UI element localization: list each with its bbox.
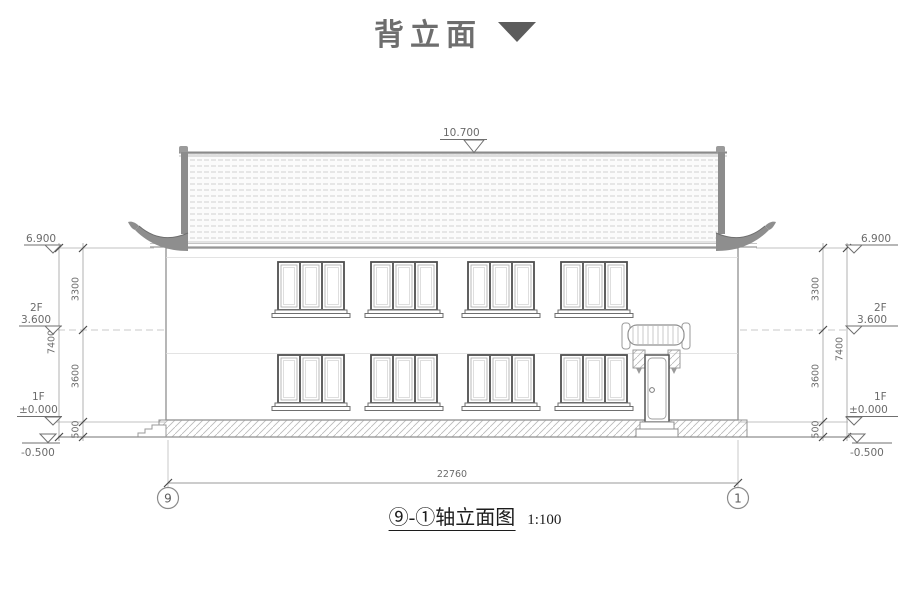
level-f2-left: 3.600 (21, 314, 51, 326)
axis-label-9: 9 (164, 492, 172, 506)
gable-left (181, 152, 188, 234)
building (58, 248, 850, 437)
floor1-label-right: 1F (874, 391, 887, 403)
dim-3300: 3300 (811, 277, 822, 301)
level-f1-left: ±0.000 (19, 404, 58, 416)
dim-3600: 3600 (71, 364, 82, 388)
tile-area (187, 154, 721, 242)
floor1-label-left: 1F (32, 391, 45, 403)
dim-3600: 3600 (811, 364, 822, 388)
door-step-2 (636, 429, 678, 437)
gable-right (718, 152, 725, 234)
dim-7400: 7400 (835, 337, 846, 361)
ridge-ornament-right (716, 146, 725, 153)
level-ridge: 10.700 (443, 127, 480, 139)
level-f1-right: ±0.000 (849, 404, 888, 416)
door-step-1 (640, 422, 674, 429)
elevation-page: 背立面 (0, 0, 910, 616)
caption-text: ⑨-①轴立面图 (389, 507, 516, 531)
left-steps (138, 425, 166, 437)
canopy-bracket-right (668, 350, 680, 368)
dimension-ticks (55, 244, 87, 441)
ridge-ornament-left (179, 146, 188, 153)
caption-scale: 1:100 (527, 512, 561, 528)
dim-22760: 22760 (437, 469, 467, 480)
window (272, 262, 350, 318)
window (365, 355, 443, 411)
dimension-right: 3300 3600 500 7400 (811, 243, 852, 441)
dimension-bottom: 22760 9 1 (158, 440, 749, 509)
level-ground-right: -0.500 (850, 447, 884, 459)
window (462, 355, 540, 411)
level-eave-left: 6.900 (26, 233, 56, 245)
floor2-label-right: 2F (874, 302, 887, 314)
window (555, 262, 633, 318)
level-eave-right: 6.900 (861, 233, 891, 245)
dim-500: 500 (811, 420, 822, 438)
window (555, 355, 633, 411)
axis-label-1: 1 (734, 492, 742, 506)
door-canopy (628, 325, 684, 345)
floor2-label-left: 2F (30, 302, 43, 314)
dim-3300: 3300 (71, 277, 82, 301)
canopy-bracket-left (633, 350, 645, 368)
window (365, 262, 443, 318)
level-f2-right: 3.600 (857, 314, 887, 326)
level-ground-left: -0.500 (21, 447, 55, 459)
window (462, 262, 540, 318)
window (272, 355, 350, 411)
entry-door (645, 355, 669, 422)
dim-500: 500 (71, 420, 82, 438)
roof (128, 146, 776, 251)
drawing-caption: ⑨-①轴立面图 1:100 (389, 501, 562, 530)
